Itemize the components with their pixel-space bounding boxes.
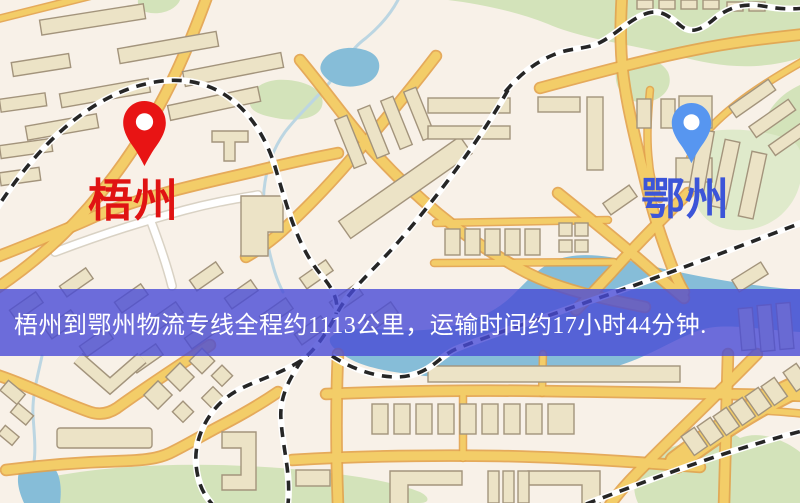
destination-label: 鄂州 [641,178,729,222]
origin-label: 梧州 [88,178,178,223]
map-image: 梧州 鄂州 梧州到鄂州物流专线全程约1113公里，运输时间约17小时44分钟. [0,0,800,503]
map-background [0,0,800,503]
destination-pin-icon [669,102,714,164]
route-info-banner: 梧州到鄂州物流专线全程约1113公里，运输时间约17小时44分钟. [0,289,800,356]
route-info-text: 梧州到鄂州物流专线全程约1113公里，运输时间约17小时44分钟. [14,305,707,340]
origin-pin-icon [121,100,168,167]
